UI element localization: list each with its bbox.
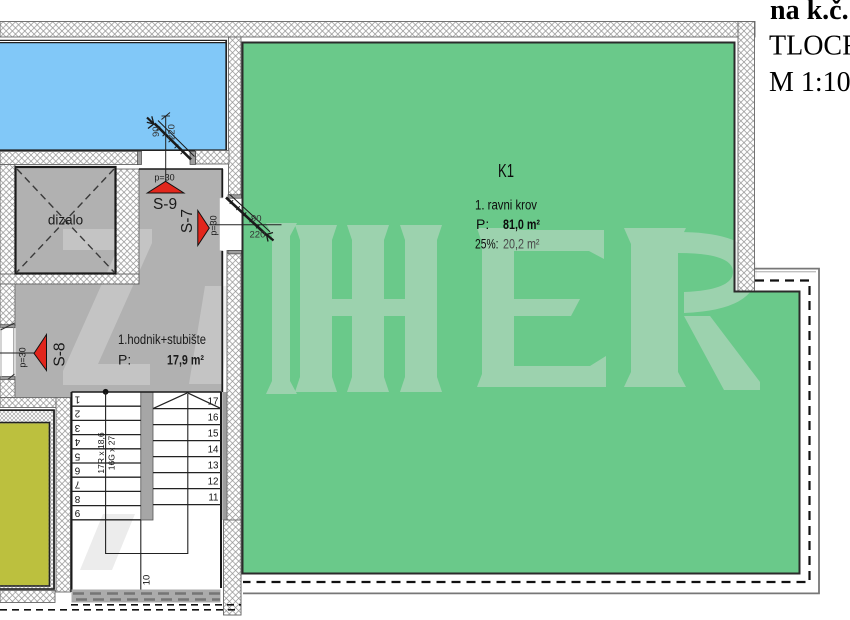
svg-text:4: 4 [74,436,80,447]
svg-text:2: 2 [74,408,80,419]
svg-text:14: 14 [208,445,219,456]
svg-text:6: 6 [74,464,80,475]
svg-text:10: 10 [142,575,153,586]
svg-text:90: 90 [251,214,262,225]
svg-text:S-9: S-9 [153,196,177,213]
svg-text:81,0 m²: 81,0 m² [503,216,540,232]
svg-text:7: 7 [74,479,80,490]
svg-text:p=30: p=30 [154,173,174,183]
svg-text:P:: P: [118,352,131,368]
svg-text:p=30: p=30 [209,215,219,235]
svg-text:9: 9 [74,507,80,518]
svg-text:5: 5 [74,450,80,461]
svg-text:220: 220 [167,124,178,140]
svg-text:dizalo: dizalo [48,213,83,228]
svg-text:15: 15 [208,429,219,440]
svg-text:1: 1 [74,393,80,404]
svg-text:M 1:100: M 1:100 [769,67,850,98]
svg-text:p=30: p=30 [18,347,28,367]
svg-text:17R x 18,6: 17R x 18,6 [96,432,106,473]
svg-text:1. ravni krov: 1. ravni krov [475,198,537,213]
svg-text:S-7: S-7 [179,209,196,233]
svg-text:8: 8 [74,493,80,504]
svg-text:17,9 m²: 17,9 m² [167,352,204,368]
svg-text:TLOCRT: TLOCRT [769,31,850,62]
svg-text:na k.č.: na k.č. [770,0,849,26]
svg-text:17: 17 [208,397,219,408]
svg-text:P:: P: [476,216,489,232]
svg-text:16G x 27: 16G x 27 [107,435,117,470]
svg-text:13: 13 [208,461,219,472]
svg-text:20,2 m²: 20,2 m² [503,236,540,252]
svg-text:1.hodnik+stubište: 1.hodnik+stubište [118,332,206,347]
svg-text:220: 220 [250,230,266,241]
svg-text:11: 11 [208,493,218,504]
svg-text:90: 90 [151,126,162,137]
svg-text:S-8: S-8 [52,342,69,366]
svg-text:K1: K1 [498,161,514,181]
svg-text:12: 12 [208,477,219,488]
svg-text:3: 3 [74,422,80,433]
svg-text:16: 16 [208,413,219,424]
svg-text:25%:: 25%: [475,236,499,252]
